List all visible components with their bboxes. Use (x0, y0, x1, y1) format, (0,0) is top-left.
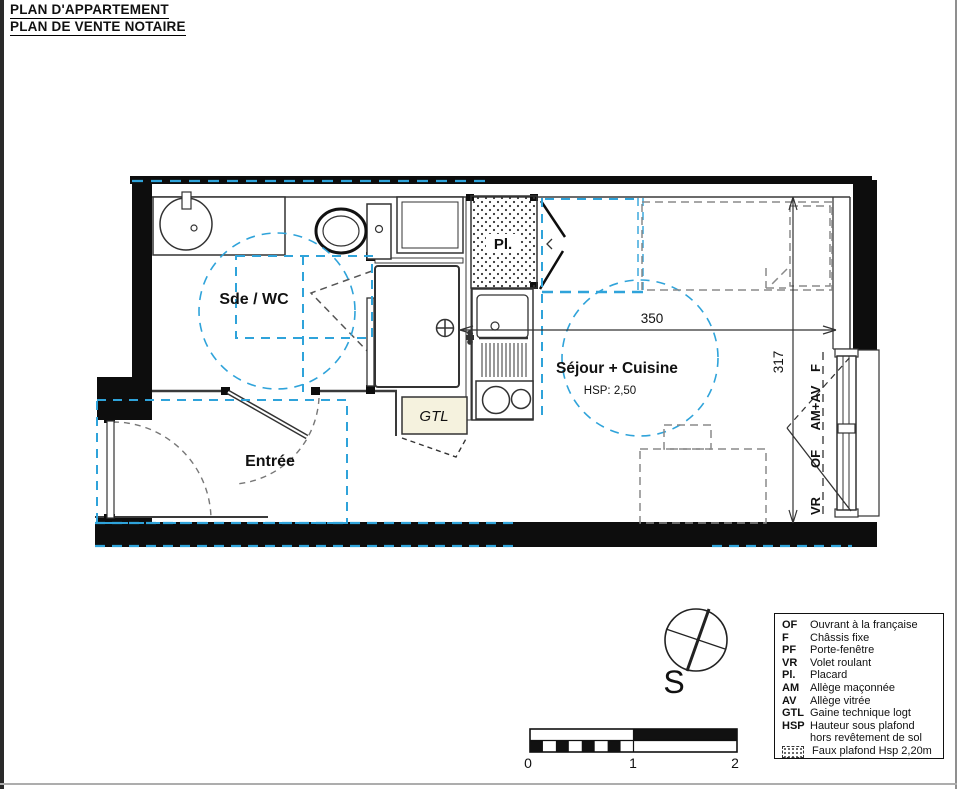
dimension-height-value: 317 (771, 351, 786, 374)
wall-right-upper (853, 180, 877, 350)
legend-row: AV Allège vitrée (782, 695, 939, 708)
kitchen-sink (477, 295, 528, 338)
kitchen-unit (466, 289, 533, 420)
bed-outline (642, 202, 832, 290)
legend-row-faux-plafond: Faux plafond Hsp 2,20m (782, 745, 939, 758)
legend-box: OF Ouvrant à la française F Châssis fixe… (774, 613, 944, 759)
closet-label: Pl. (494, 236, 512, 253)
legend-abbr: VR (782, 657, 810, 670)
room-label-entree: Entrée (245, 453, 295, 470)
entry-door-swing (113, 422, 211, 520)
faux-plafond-swatch-icon (782, 746, 804, 758)
compass-south-label: S (663, 664, 684, 700)
legend-label: Ouvrant à la française (810, 619, 939, 632)
legend-abbr: HSP (782, 720, 810, 733)
shower (375, 266, 459, 387)
label-am-av: AM+AV (808, 385, 823, 430)
wall-top (130, 176, 872, 184)
basin-drain-icon (191, 225, 197, 231)
compass: S (663, 609, 727, 700)
hob (476, 381, 533, 419)
room-label-sejour: Séjour + Cuisine (556, 360, 678, 377)
legend-label: Gaine technique logt (810, 707, 939, 720)
legend-label: Hauteur sous plafond hors revêtement de … (810, 720, 939, 745)
legend-abbr: GTL (782, 707, 810, 720)
room-hsp-note: HSP: 2,50 (584, 385, 636, 397)
legend-abbr: PF (782, 644, 810, 657)
legend-label: Volet roulant (810, 657, 939, 670)
legend-abbr: OF (782, 619, 810, 632)
gtl-label: GTL (419, 408, 448, 425)
scale-tick-0: 0 (524, 755, 532, 771)
wall-left-step (97, 377, 152, 420)
compass-circle (665, 609, 727, 671)
legend-label: Faux plafond Hsp 2,20m (812, 745, 939, 758)
legend-row: HSP Hauteur sous plafond hors revêtement… (782, 720, 939, 745)
bathroom-door-swing (311, 271, 372, 356)
window-bay (855, 350, 879, 516)
washbasin (153, 192, 285, 255)
legend-row: OF Ouvrant à la française (782, 619, 939, 632)
scale-tick-1: 1 (629, 755, 637, 771)
label-of: OF (808, 450, 823, 468)
window-annotations: F AM+AV OF VR (808, 364, 823, 515)
closet-pl: Pl. (471, 196, 565, 289)
pillow-outline (790, 206, 830, 286)
table-outline (640, 449, 766, 523)
legend-abbr: Pl. (782, 669, 810, 682)
basin-tap-icon (182, 192, 191, 209)
legend-abbr: AV (782, 695, 810, 708)
legend-row: GTL Gaine technique logt (782, 707, 939, 720)
scale-tick-2: 2 (731, 755, 739, 771)
closet-folding-door (541, 201, 565, 237)
label-f: F (808, 364, 823, 372)
legend-label: Allège maçonnée (810, 682, 939, 695)
legend-row: F Châssis fixe (782, 632, 939, 645)
bathroom-cabinet (397, 197, 463, 253)
flush-button-icon (376, 226, 383, 233)
bed-corner-mark (766, 268, 787, 288)
wall-bottom (95, 522, 877, 547)
gtl-door-swing (402, 437, 467, 457)
floor-plan-page: { "page": { "title_line1": "PLAN D'APPAR… (0, 0, 969, 789)
room-label-sde-wc: Sde / WC (219, 291, 289, 308)
legend-row: PF Porte-fenêtre (782, 644, 939, 657)
legend-label: Châssis fixe (810, 632, 939, 645)
legend-row: AM Allège maçonnée (782, 682, 939, 695)
dimension-width-value: 350 (641, 311, 664, 326)
legend-row: VR Volet roulant (782, 657, 939, 670)
legend-abbr: F (782, 632, 810, 645)
turning-circle-sejour (562, 280, 718, 436)
bathroom-door-leaf (367, 298, 374, 386)
hall-door-swing (236, 398, 319, 484)
chair-outline (664, 425, 711, 449)
label-vr: VR (808, 496, 823, 515)
gtl-duct: GTL (402, 397, 467, 457)
legend-label: Porte-fenêtre (810, 644, 939, 657)
legend-label: Placard (810, 669, 939, 682)
legend-label: Allège vitrée (810, 695, 939, 708)
scale-bar: 0 1 2 (524, 729, 739, 771)
dimension-317: 317 (771, 197, 797, 523)
window-right: F AM+AV OF VR (787, 349, 879, 517)
entry-door-frame (107, 421, 114, 518)
shower-tray (375, 266, 459, 387)
legend-row: Pl. Placard (782, 669, 939, 682)
legend-abbr: AM (782, 682, 810, 695)
wall-left-upper (132, 176, 152, 378)
window-mullion (838, 424, 855, 433)
